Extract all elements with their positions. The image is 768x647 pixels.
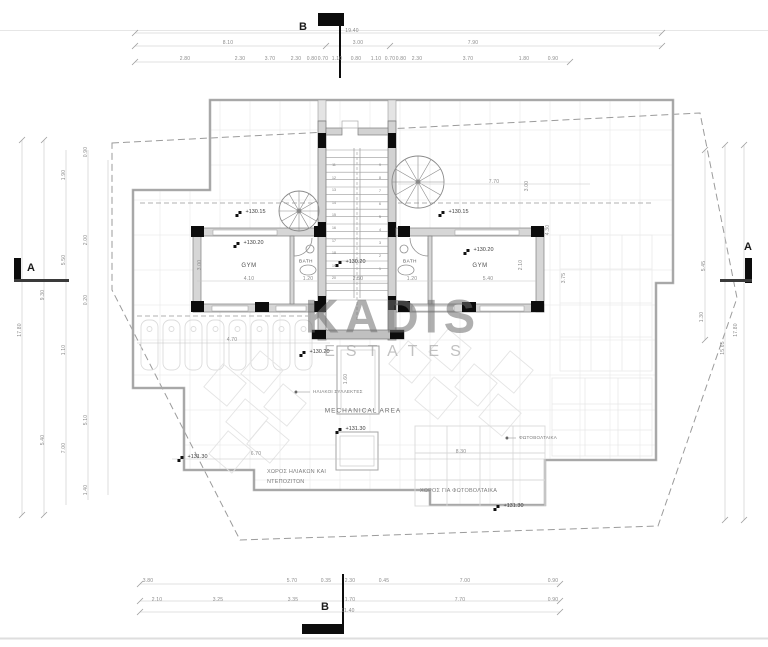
dimension-label: 1.10 [371,56,382,62]
dimension-label: 2.30 [235,56,246,62]
dimension-label: 1.30 [699,312,705,323]
dimension-label: 4.70 [227,337,238,343]
stair-step-number: 11 [332,163,336,167]
dimension-label: 2.80 [180,56,191,62]
elevation-marker-icon [180,456,183,459]
elevation-marker: +130.15 [238,209,265,215]
dimension-label: 11.40 [341,608,354,614]
stair-step-number: 12 [332,176,336,180]
annotation-layer: 19.408.103.007.902.802.303.702.300.800.7… [0,0,768,647]
elevation-marker-icon [236,242,239,245]
dimension-label: 3.80 [143,578,154,584]
elevation-marker: +130.20 [466,247,493,253]
dimension-label: 3.00 [197,260,203,271]
dimension-label: 7.00 [61,443,67,454]
dimension-label: 8.10 [223,40,234,46]
stair-step-number: 8 [379,176,381,180]
dimension-label: 2.10 [518,260,524,271]
dimension-label: 0.90 [548,578,559,584]
dimension-label: 2.30 [291,56,302,62]
dimension-label: 1.10 [332,56,343,62]
dimension-label: 1.90 [61,170,67,181]
dimension-label: 2.30 [412,56,423,62]
dimension-label: 1.80 [519,56,530,62]
stair-step-number: 14 [332,201,336,205]
dimension-label: 0.20 [83,295,89,306]
elevation-marker: +130.20 [302,349,329,355]
dimension-label: 0.70 [385,56,396,62]
elevation-marker-icon [496,505,499,508]
dimension-label: 0.80 [307,56,318,62]
dimension-label: 2.30 [345,578,356,584]
elevation-marker-icon [441,211,444,214]
dimension-label: 1.60 [343,374,349,385]
dimension-label: 8.30 [456,449,467,455]
dimension-label: 1.20 [303,276,314,282]
stair-step-number: 17 [332,239,336,243]
dimension-label: 6.70 [251,451,262,457]
stair-step-number: 20 [332,276,336,280]
dimension-label: 7.90 [468,40,479,46]
dimension-label: 7.70 [489,179,500,185]
dimension-label: 5.45 [701,261,707,272]
stair-step-number: 7 [379,189,381,193]
stair-step-number: 6 [379,202,381,206]
dimension-label: 4.30 [545,225,551,236]
dimension-label: 5.10 [83,415,89,426]
dimension-label: 7.70 [455,597,466,603]
dimension-label: 3.25 [213,597,224,603]
elevation-marker-icon [238,211,241,214]
dimension-label: 0.90 [548,597,559,603]
dimension-label: 0.70 [318,56,329,62]
dimension-label: 5.40 [483,276,494,282]
elevation-marker-icon [338,261,341,264]
dimension-label: 0.35 [321,578,332,584]
elevation-marker: +130.15 [441,209,468,215]
dimension-label: 2.00 [83,235,89,246]
stair-step-number: 15 [332,213,336,217]
dimension-label: 3.35 [288,597,299,603]
dimension-label: 0.90 [548,56,559,62]
floorplan-page: KADIS ESTATES B B A A GYM BATH BATH GYM … [0,0,768,647]
stair-step-number: 9 [379,163,381,167]
elevation-marker: +130.20 [338,259,365,265]
dimension-label: 0.90 [83,147,89,158]
dimension-label: 0.45 [379,578,390,584]
dimension-label: 4.10 [244,276,255,282]
elevation-marker: +130.20 [236,240,263,246]
elevation-marker-icon [466,249,469,252]
stair-step-number: 4 [379,228,381,232]
dimension-label: 2.10 [152,597,163,603]
dimension-label: 3.00 [353,40,364,46]
stair-step-number: 1 [379,267,381,271]
stair-step-number: 5 [379,215,381,219]
dimension-label: 9.30 [40,290,46,301]
dimension-label: 15.65 [720,341,726,355]
dimension-label: 5.50 [61,255,67,266]
dimension-label: 3.75 [561,273,567,284]
dimension-label: 7.00 [460,578,471,584]
stair-step-number: 13 [332,188,336,192]
stair-step-number: 18 [332,251,336,255]
dimension-label: 19.40 [345,28,359,34]
dimension-label: 0.80 [351,56,362,62]
stair-step-number: 19 [332,264,336,268]
elevation-marker-icon [338,428,341,431]
dimension-label: 1.40 [83,485,89,496]
stair-step-number: 2 [379,254,381,258]
dimension-label: 17.80 [17,323,23,337]
dimension-label: 17.80 [733,323,739,337]
elevation-marker-icon [302,351,305,354]
stair-step-number: 3 [379,241,381,245]
dimension-label: 3.70 [265,56,276,62]
dimension-label: 1.10 [61,345,67,356]
elevation-marker: +131.30 [180,454,207,460]
dimension-label: 0.80 [396,56,407,62]
dimension-label: 5.70 [287,578,298,584]
dimension-label: 3.00 [524,181,530,192]
dimension-label: 5.40 [40,435,46,446]
elevation-marker: +131.30 [338,426,365,432]
dimension-label: 1.20 [407,276,418,282]
dimension-label: 2.50 [353,276,364,282]
dimension-label: 3.70 [463,56,474,62]
dimension-label: 1.70 [345,597,356,603]
stair-step-number: 16 [332,226,336,230]
elevation-marker: +131.30 [496,503,523,509]
